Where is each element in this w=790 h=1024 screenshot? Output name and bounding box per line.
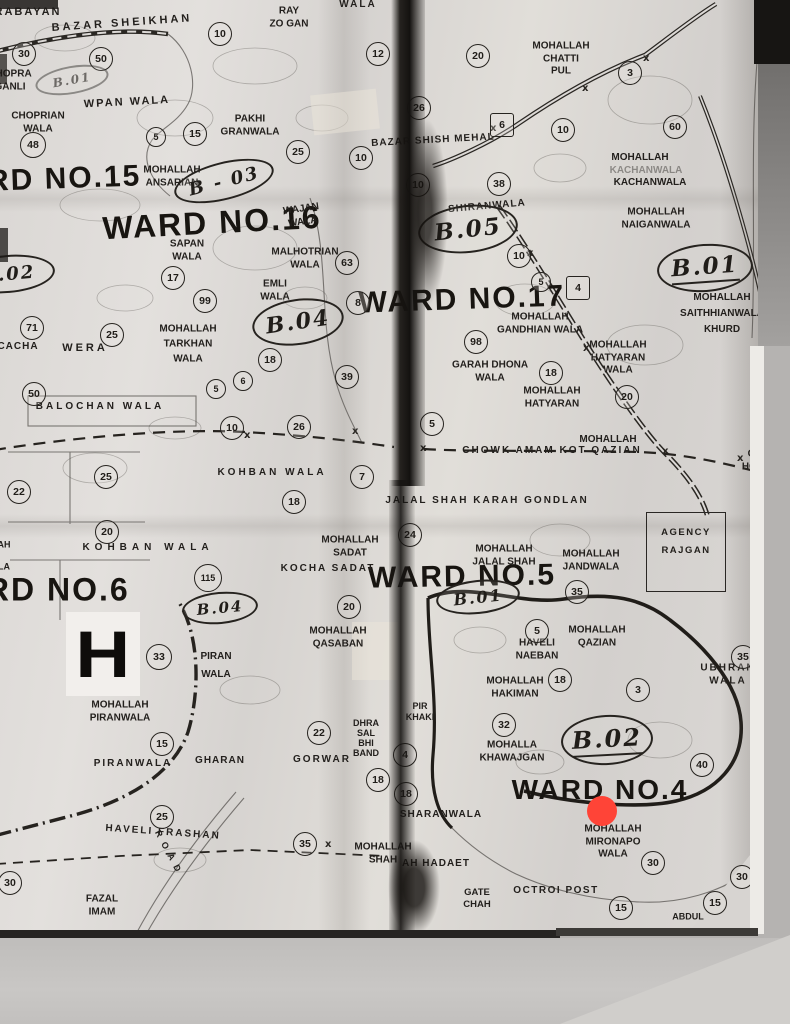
area-number-badge: 18: [282, 490, 306, 514]
map-label: MOHALLAH QAZIAN: [568, 625, 625, 650]
area-number-badge: 38: [487, 172, 511, 196]
area-number-badge: 10: [208, 22, 232, 46]
block-code-label: B.05: [416, 200, 520, 258]
map-label: AH: [0, 539, 11, 550]
area-number-badge: 35: [731, 645, 755, 669]
area-number-badge: 25: [94, 465, 118, 489]
map-label: WALA: [339, 0, 376, 11]
area-number-badge: 18: [394, 782, 418, 806]
area-number-badge: 5: [531, 272, 551, 292]
map-label: MOHALLAH PIRANWALA: [90, 700, 151, 725]
map-label: MOHALLAH JANDWALA: [562, 549, 619, 574]
area-number-badge: 63: [335, 251, 359, 275]
area-number-badge: 5: [206, 379, 226, 399]
area-number-badge: 10: [551, 118, 575, 142]
block-code-label: B.02: [0, 251, 56, 297]
area-number-badge: 71: [20, 316, 44, 340]
map-label: MOHALLAH GANDHIAN WALA: [497, 312, 583, 337]
map-label: KACHANWALA: [614, 177, 687, 190]
area-number-badge: 18: [366, 768, 390, 792]
scanned-ward-map: xx xx xx xx xx x WARD NO.15WARD NO.16WAR…: [0, 0, 790, 1024]
map-label: RAY ZO GAN: [270, 6, 309, 31]
area-number-badge: 26: [407, 96, 431, 120]
map-label: BALOCHAN WALA: [36, 401, 164, 414]
map-label: MOHALLAH: [611, 152, 668, 165]
map-label: MOHALLAH NAIGANWALA: [622, 207, 691, 232]
map-label: JALAL SHAH KARAH GONDLAN: [385, 495, 588, 508]
area-number-badge: 30: [0, 871, 22, 895]
area-number-badge: 35: [293, 832, 317, 856]
area-number-badge: 33: [146, 644, 172, 670]
area-number-badge: 6: [490, 113, 514, 137]
map-label: CHOPRIAN WALA: [11, 111, 64, 136]
map-label: AH HADAET: [402, 858, 470, 871]
area-number-badge: 20: [95, 520, 119, 544]
agency-line: RAJGAN: [661, 545, 710, 556]
map-label: KOCHA SADAT: [281, 563, 376, 576]
map-label: PIRAN WALA: [200, 648, 231, 684]
map-label: SAPAN WALA: [170, 239, 204, 264]
area-number-badge: 20: [466, 44, 490, 68]
block-code-label: B.01: [655, 241, 754, 296]
area-number-badge: 18: [548, 668, 572, 692]
map-label: RABAYAN: [0, 6, 61, 20]
area-number-badge: 4: [393, 743, 417, 767]
area-number-badge: 10: [220, 416, 244, 440]
red-location-dot: [587, 796, 617, 826]
area-number-badge: 22: [7, 480, 31, 504]
area-number-badge: 18: [258, 348, 282, 372]
map-label: MOHALLAH TARKHAN WALA: [159, 322, 216, 367]
area-number-badge: 15: [183, 122, 207, 146]
hospital-marker: H: [66, 612, 140, 696]
map-label: MOHALLAH SADAT: [321, 535, 378, 560]
map-label: GATE CHAH: [463, 887, 490, 911]
area-number-badge: 5: [420, 412, 444, 436]
area-number-badge: 26: [287, 415, 311, 439]
area-number-badge: 25: [286, 140, 310, 164]
map-label: OCTROI POST: [513, 885, 598, 898]
area-number-badge: 39: [335, 365, 359, 389]
map-label: WAJAN WALA: [282, 201, 321, 231]
map-label: PIRANWALA: [94, 758, 173, 771]
area-number-badge: 7: [350, 465, 374, 489]
area-number-badge: 3: [618, 61, 642, 85]
area-number-badge: 99: [193, 289, 217, 313]
area-number-badge: 18: [539, 361, 563, 385]
ward-title-label: WARD NO.15: [0, 159, 142, 200]
area-number-badge: 3: [626, 678, 650, 702]
area-number-badge: 98: [464, 330, 488, 354]
map-label: MOHALLAH QASABAN: [309, 626, 366, 651]
map-label: PIR KHAKI: [406, 701, 435, 724]
area-number-badge: 5: [525, 619, 549, 643]
area-number-badge: 15: [703, 891, 727, 915]
area-number-badge: 30: [12, 42, 36, 66]
map-label: DHRA SAL BHI BAND: [353, 718, 379, 758]
map-label: CHOPRA GANLI: [0, 69, 32, 94]
area-number-badge: 6: [233, 371, 253, 391]
area-number-badge: 24: [398, 523, 422, 547]
map-label: ABDUL: [672, 911, 704, 922]
area-number-badge: 115: [194, 564, 222, 592]
area-number-badge: 25: [100, 323, 124, 347]
map-label: MOHALLAH JALAL SHAH: [472, 544, 535, 569]
map-label: GORWAR: [293, 754, 351, 767]
area-number-badge: 32: [492, 713, 516, 737]
map-label: MOHALLAH CHATTI PUL: [532, 40, 589, 78]
block-code-label: B.01: [33, 60, 111, 100]
area-number-badge: 15: [609, 896, 633, 920]
map-label: WPAN WALA: [84, 94, 171, 112]
map-label: MOHALLAH HAKIMAN: [486, 676, 543, 701]
map-label: LA: [0, 561, 10, 572]
map-label: GHARAN: [195, 755, 245, 768]
area-number-badge: 10: [406, 173, 430, 197]
map-label: MOHALLAH HATYARAN WALA: [589, 339, 646, 377]
ward-title-label: WARD NO.6: [0, 572, 130, 609]
area-number-badge: 10: [507, 244, 531, 268]
map-label: KACHANWALA: [610, 165, 683, 178]
block-code-label: B.02: [560, 713, 654, 768]
map-label: MALHOTRIAN WALA: [271, 247, 338, 272]
area-number-badge: 25: [150, 805, 174, 829]
area-number-badge: 60: [663, 115, 687, 139]
area-number-badge: 15: [150, 732, 174, 756]
area-number-badge: 10: [349, 146, 373, 170]
map-label: CHOWK AMAM KOT QAZIAN: [462, 445, 641, 458]
area-number-badge: 17: [161, 266, 185, 290]
map-label: KOHBAN WALA: [217, 467, 326, 480]
area-number-badge: 30: [641, 851, 665, 875]
agency-line: AGENCY: [661, 527, 711, 538]
map-label: CIV HOSP: [742, 449, 770, 474]
map-label: SHARANWALA: [400, 809, 482, 822]
area-number-badge: 20: [615, 385, 639, 409]
map-label: BAZAR SHEIKHAN: [51, 12, 193, 36]
area-number-badge: 50: [22, 382, 46, 406]
map-label: CACHA: [0, 341, 39, 354]
area-number-badge: 8: [346, 291, 370, 315]
hospital-letter: H: [76, 621, 131, 687]
map-label: PAKHI GRANWALA: [221, 114, 280, 139]
map-label: MOHALLAH MIRONAPO WALA: [584, 823, 641, 861]
map-label: MOHALLAH HATYARAN: [523, 386, 580, 411]
area-number-badge: 12: [366, 42, 390, 66]
area-number-badge: 40: [690, 753, 714, 777]
map-label: KOHBAN WALA: [82, 542, 213, 555]
area-number-badge: 5: [146, 127, 166, 147]
map-label: EMLI WALA: [260, 279, 289, 304]
map-label: FAZAL IMAM: [86, 894, 118, 919]
area-number-badge: 48: [20, 132, 46, 158]
map-label: BAZAR SHISH MEHAL: [371, 132, 495, 151]
map-label: GARAH DHONA WALA: [452, 360, 528, 385]
area-number-badge: 4: [566, 276, 590, 300]
block-code-label: B.04: [181, 589, 259, 628]
area-number-badge: 35: [565, 580, 589, 604]
area-number-badge: 22: [307, 721, 331, 745]
map-label: MOHALLAH SAITHHIANWALA KHURD: [680, 290, 764, 338]
map-label: MOHALLA KHAWAJGAN: [479, 740, 544, 765]
area-number-badge: 30: [730, 865, 754, 889]
map-label: WERA: [62, 342, 108, 356]
agency-rajgan-box: AGENCY RAJGAN: [646, 512, 726, 592]
area-number-badge: 20: [337, 595, 361, 619]
